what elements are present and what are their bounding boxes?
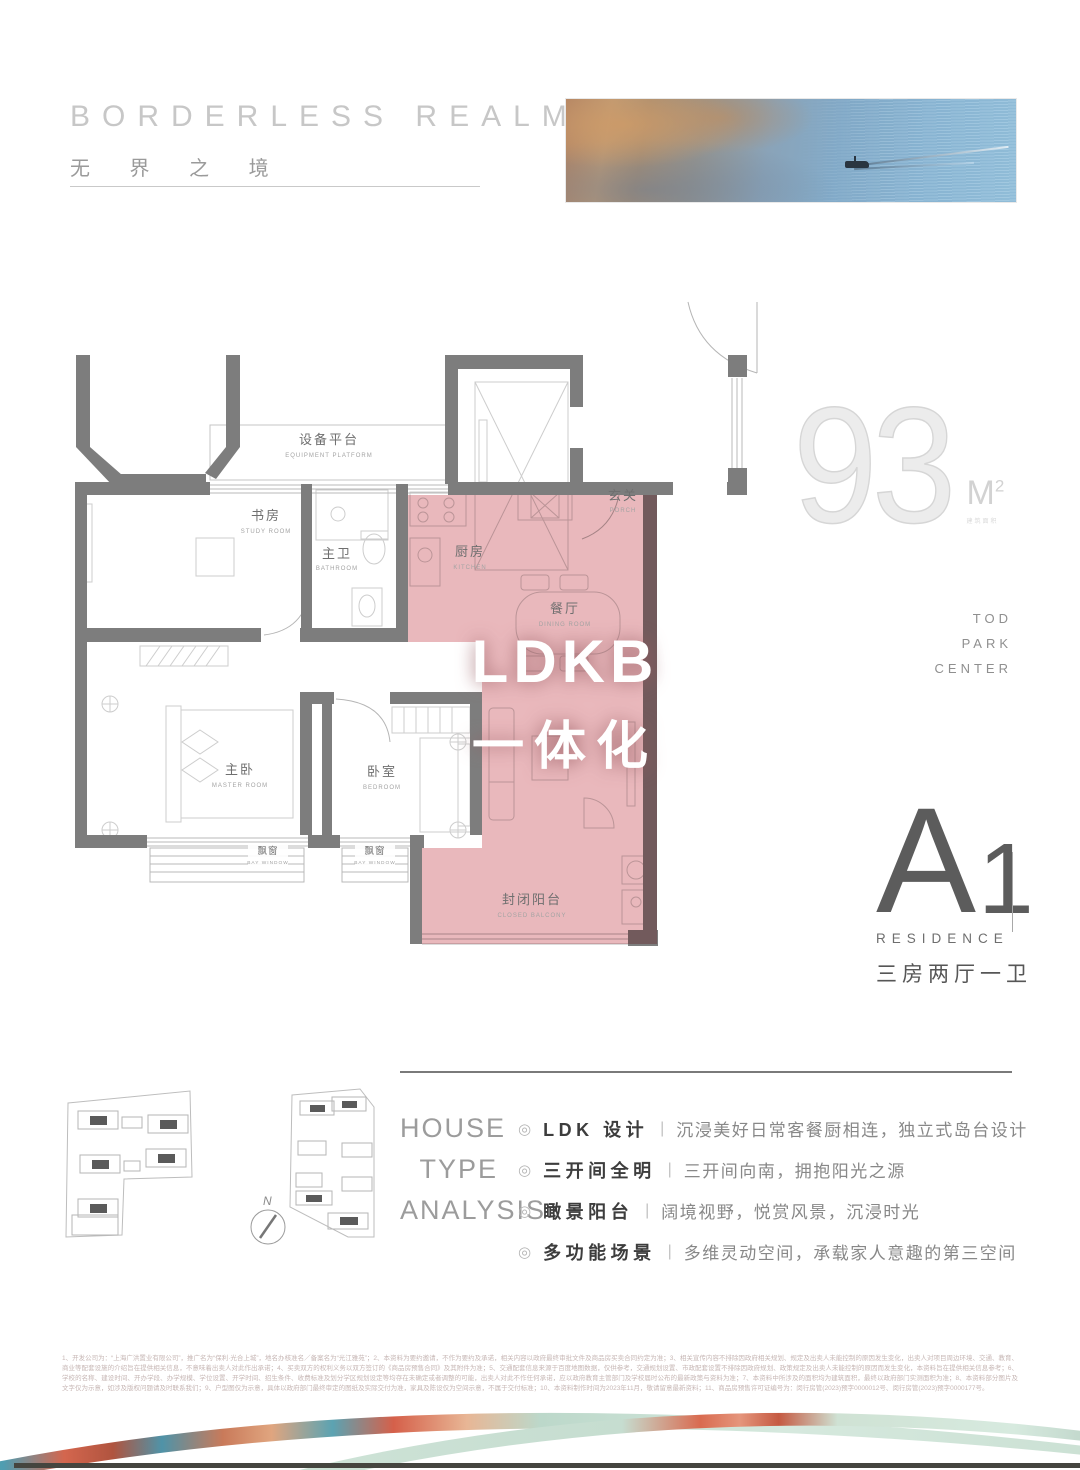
bullet-icon: ◎ [518, 1202, 531, 1220]
analysis-heading-line: ANALYSIS [400, 1190, 498, 1231]
area-note: 建筑面积 [967, 516, 1005, 525]
analysis-divider [400, 1071, 1012, 1073]
ldk-slogan-line1: LDKB [472, 628, 659, 695]
analysis-heading-line: TYPE [400, 1149, 498, 1190]
brand-block: TOD PARK CENTER [935, 606, 1012, 681]
label-bay2-en: BAY WINDOW [354, 860, 396, 866]
analysis-items: ◎ LDK 设计 | 沉浸美好日常客餐厨相连，独立式岛台设计 ◎ 三开间全明 |… [518, 1108, 1028, 1272]
unit-number: 1 [978, 839, 1034, 919]
analysis-item: ◎ LDK 设计 | 沉浸美好日常客餐厨相连，独立式岛台设计 [518, 1108, 1028, 1149]
analysis-item-desc: 三开间向南，拥抱阳光之源 [684, 1157, 906, 1182]
bullet-icon: ◎ [518, 1161, 531, 1179]
label-equipment-platform-cn: 设备平台 [299, 432, 359, 447]
unit-type: 三房两厅一卫 [876, 958, 1016, 988]
bottom-rule [14, 1463, 1080, 1468]
ribbon-graphic [0, 1396, 1080, 1470]
site-buildings-highlighted [90, 1101, 358, 1225]
label-porch-cn: 玄关 [608, 488, 638, 503]
label-bay2-cn: 飘窗 [364, 845, 385, 857]
label-bay1-en: BAY WINDOW [247, 860, 289, 866]
pipe-divider: | [660, 1120, 664, 1138]
area-value: 93 [793, 398, 951, 533]
label-equipment-platform-en: EQUIPMENT PLATFORM [285, 453, 372, 459]
label-balcony-cn: 封闭阳台 [502, 892, 562, 907]
boat-icon [845, 161, 869, 168]
analysis-item-desc: 多维灵动空间，承载家人意趣的第三空间 [684, 1239, 1017, 1264]
ac-symbols [102, 696, 466, 838]
label-master-en: MASTER ROOM [212, 783, 268, 789]
unit-code: A 1 [876, 802, 1016, 919]
property-poster: BORDERLESS REALM 无 界 之 境 [0, 0, 1080, 1470]
north-compass: N [251, 1194, 285, 1244]
pipe-divider: | [668, 1243, 672, 1261]
label-bedroom-en: BEDROOM [363, 785, 401, 791]
header-divider [70, 186, 480, 187]
page-title-cn: 无 界 之 境 [70, 152, 490, 181]
label-porch-en: PORCH [610, 508, 637, 514]
north-label: N [263, 1194, 272, 1208]
header: BORDERLESS REALM 无 界 之 境 [70, 100, 490, 181]
area-unit-m: M [967, 474, 995, 512]
unit-letter: A [876, 802, 976, 919]
brand-line: TOD [935, 606, 1012, 631]
analysis-heading-line: HOUSE [400, 1108, 498, 1149]
analysis-item: ◎ 瞰景阳台 | 阔境视野，悦赏风景，沉浸时光 [518, 1190, 1028, 1231]
area-figure: 93 M2 建筑面积 [793, 398, 1004, 533]
analysis-item-label: 三开间全明 [543, 1157, 656, 1183]
unit-subtitle: RESIDENCE [876, 931, 1016, 946]
site-plan: N [60, 1085, 380, 1270]
analysis-heading: HOUSE TYPE ANALYSIS [400, 1108, 498, 1272]
badge-divider [1012, 852, 1013, 932]
label-study-en: STUDY ROOM [241, 529, 292, 535]
page-title-en: BORDERLESS REALM [70, 100, 490, 134]
label-study-cn: 书房 [251, 508, 281, 523]
label-bathroom-en: BATHROOM [316, 566, 358, 572]
bullet-icon: ◎ [518, 1243, 531, 1261]
analysis-item-label: 多功能场景 [543, 1239, 656, 1265]
disclaimer-text: 1、开发公司为：“上海广洪置业有限公司”，推广名为“保利·光合上城”，地名办核准… [62, 1354, 1018, 1394]
analysis-item: ◎ 三开间全明 | 三开间向南，拥抱阳光之源 [518, 1149, 1028, 1190]
floor-plan: 设备平台 EQUIPMENT PLATFORM 书房 STUDY ROOM 主卫… [70, 292, 770, 968]
pipe-divider: | [645, 1202, 649, 1220]
analysis-item-desc: 沉浸美好日常客餐厨相连，独立式岛台设计 [676, 1116, 1028, 1141]
label-kitchen-cn: 厨房 [455, 544, 485, 559]
label-bay1-cn: 飘窗 [257, 845, 278, 857]
analysis-item: ◎ 多功能场景 | 多维灵动空间，承载家人意趣的第三空间 [518, 1231, 1028, 1272]
label-kitchen-en: KITCHEN [453, 565, 486, 571]
analysis-item-label: 瞰景阳台 [543, 1198, 633, 1224]
analysis-item-desc: 阔境视野，悦赏风景，沉浸时光 [661, 1198, 920, 1223]
bullet-icon: ◎ [518, 1120, 531, 1138]
analysis-section: HOUSE TYPE ANALYSIS ◎ LDK 设计 | 沉浸美好日常客餐厨… [400, 1108, 1020, 1272]
ldk-slogan-line2: 一体化 [472, 718, 658, 776]
label-master-cn: 主卧 [225, 762, 255, 777]
brand-line: PARK [935, 631, 1012, 656]
label-bedroom-cn: 卧室 [367, 764, 397, 779]
label-bathroom-cn: 主卫 [322, 546, 352, 561]
brand-line: CENTER [935, 656, 1012, 681]
pipe-divider: | [668, 1161, 672, 1179]
analysis-item-label: LDK 设计 [543, 1116, 648, 1142]
label-balcony-en: CLOSED BALCONY [497, 913, 566, 919]
label-dining-cn: 餐厅 [550, 601, 580, 616]
site-buildings [72, 1097, 372, 1235]
area-unit: M2 建筑面积 [967, 474, 1005, 525]
hero-photo [565, 98, 1017, 203]
area-unit-sup: 2 [995, 477, 1004, 496]
unit-badge: A 1 RESIDENCE 三房两厅一卫 [876, 802, 1016, 988]
